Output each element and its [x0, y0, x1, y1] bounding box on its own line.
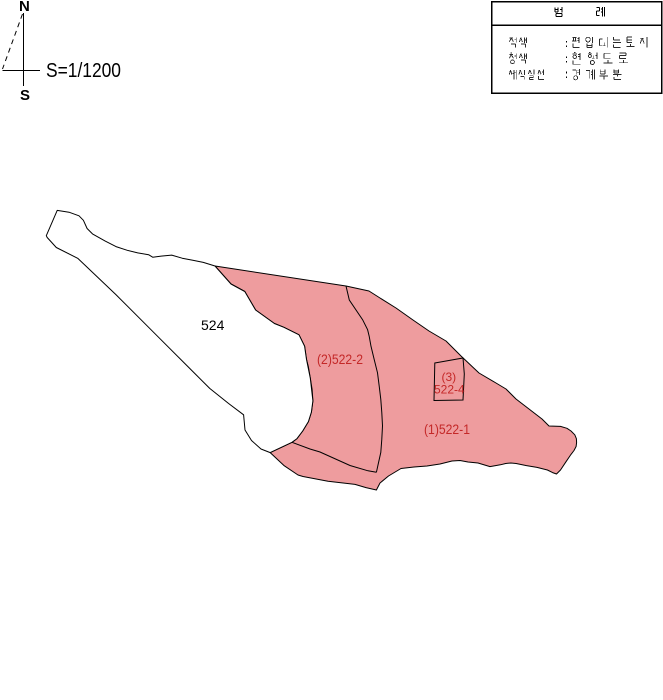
svg-text:N: N: [19, 0, 30, 15]
svg-text:(1)522-1: (1)522-1: [424, 421, 470, 437]
svg-text:(2)522-2: (2)522-2: [317, 351, 363, 367]
svg-text:524: 524: [201, 317, 225, 333]
svg-text:S: S: [20, 87, 30, 104]
svg-text:S=1/1200: S=1/1200: [46, 60, 121, 82]
svg-text:522-4: 522-4: [434, 383, 465, 397]
